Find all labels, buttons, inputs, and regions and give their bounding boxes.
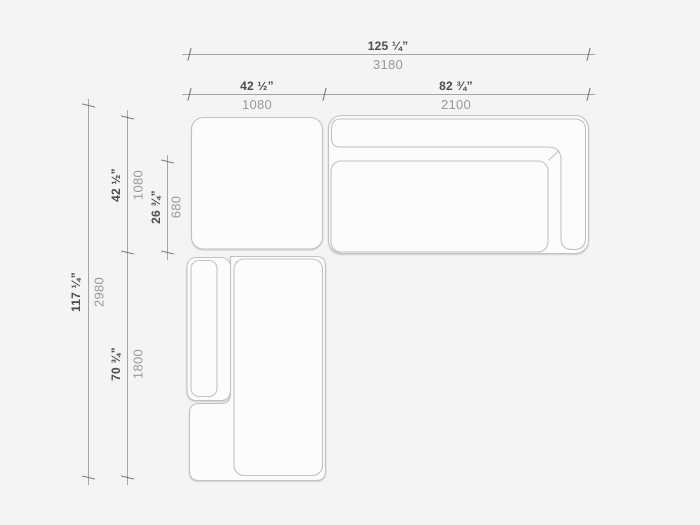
- dimension-line: [167, 155, 168, 260]
- overall-width-inches-label: 125 ¼”: [368, 39, 409, 53]
- overall-depth-mm-label: 2980: [92, 277, 107, 307]
- sofa-module-width-mm-label: 2100: [441, 97, 471, 112]
- corner-module-depth-inches-label: 42 ½”: [109, 168, 123, 202]
- chaise-module-armrest-pad-outline: [191, 261, 217, 397]
- seat-depth-mm-label: 680: [169, 196, 184, 219]
- sofa-plan-drawing: [0, 0, 700, 525]
- chaise-module-length-inches-label: 70 ¾”: [109, 347, 123, 381]
- sofa-module-seat-outline: [331, 161, 548, 252]
- chaise-module-seat-outline: [234, 259, 323, 476]
- dimension-line: [88, 99, 89, 485]
- corner-module-width-inches-label: 42 ½”: [240, 79, 274, 93]
- overall-width-mm-label: 3180: [373, 57, 403, 72]
- seat-depth-inches-label: 26 ¾”: [149, 190, 163, 224]
- dimension-line: [127, 110, 128, 485]
- dimension-line: [182, 54, 595, 55]
- overall-depth-inches-label: 117 ¼”: [69, 272, 83, 312]
- corner-module-width-mm-label: 1080: [242, 97, 272, 112]
- corner-module-outline: [192, 118, 323, 250]
- corner-module-depth-mm-label: 1080: [131, 170, 146, 200]
- dimension-line: [182, 94, 595, 95]
- technical-drawing-canvas: 125 ¼” 3180 42 ½” 1080 82 ¾” 2100 117 ¼”…: [0, 0, 700, 525]
- chaise-module-length-mm-label: 1800: [131, 349, 146, 379]
- sofa-module-width-inches-label: 82 ¾”: [439, 79, 473, 93]
